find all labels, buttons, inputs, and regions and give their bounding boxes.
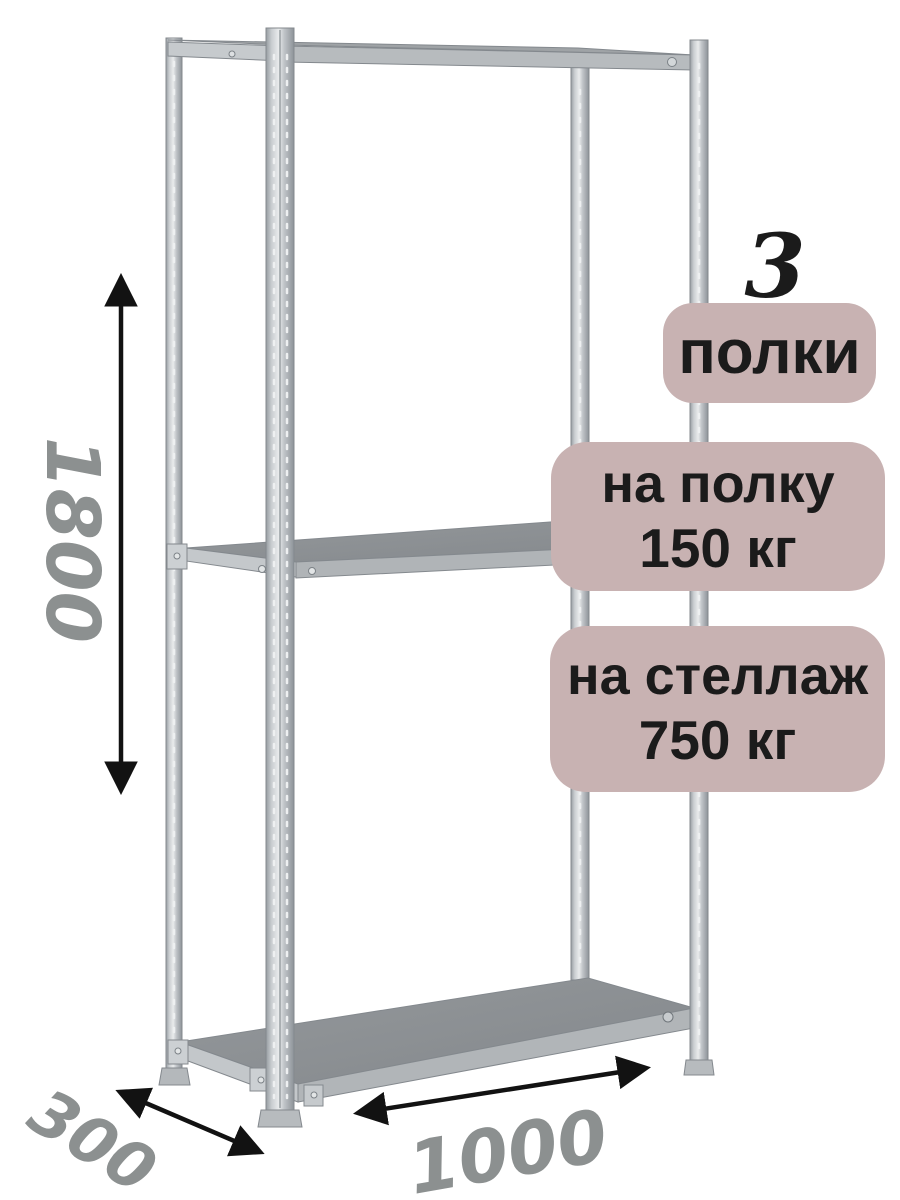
per-rack-capacity-badge: на стеллаж 750 кг (550, 626, 885, 792)
bolt (259, 566, 266, 573)
shelf-bottom (168, 978, 694, 1106)
shelf-count-badge-label: полки (678, 320, 860, 386)
height-dimension-label: 1800 (29, 437, 115, 643)
bolt (175, 1048, 181, 1054)
depth-dimension-label: 300 (16, 1075, 169, 1200)
bolt (309, 568, 316, 575)
bolt (229, 51, 235, 57)
per-shelf-capacity-line1: на полку (601, 456, 834, 513)
bolt (668, 58, 677, 67)
bolt (663, 1012, 673, 1022)
post-foot (258, 1110, 302, 1127)
per-rack-capacity-line2: 750 кг (639, 711, 796, 769)
bolt (311, 1092, 317, 1098)
shelf-count-badge: полки (663, 303, 876, 403)
shelf-top (168, 40, 694, 70)
bolt (174, 553, 180, 559)
per-rack-capacity-line1: на стеллаж (567, 648, 868, 705)
post-foot (159, 1068, 190, 1085)
per-shelf-capacity-badge: на полку 150 кг (551, 442, 885, 591)
per-shelf-capacity-line2: 150 кг (639, 519, 796, 577)
bolt (258, 1077, 264, 1083)
width-dimension-label: 1000 (402, 1093, 614, 1200)
post-front-left (258, 28, 302, 1127)
post-foot (684, 1060, 714, 1075)
rack-illustration: 1800 300 1000 (0, 0, 900, 1200)
product-image: 1800 300 1000 3 полки на полку 150 кг на… (0, 0, 900, 1200)
